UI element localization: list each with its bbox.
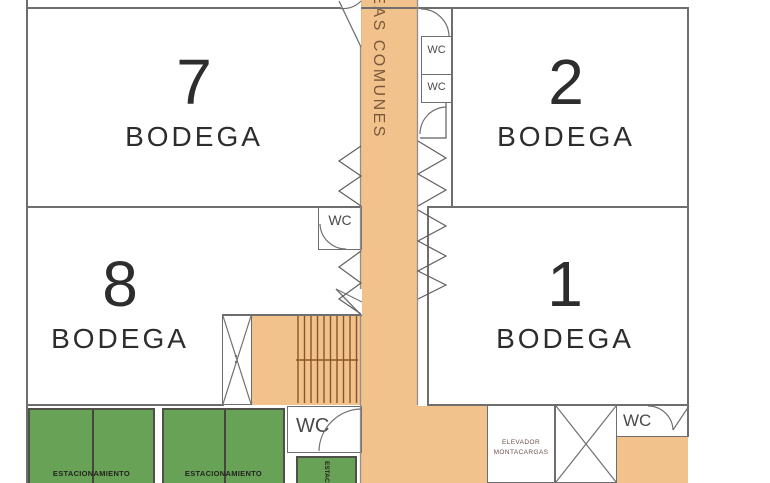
wall-right [687,7,689,437]
floor-plan-canvas: AREAS COMUNES 7 BODEGA 2 BODEGA 8 BODEGA… [0,0,770,483]
small-elevator-shaft [222,315,252,405]
corridor-label: AREAS COMUNES [369,0,387,186]
bodega-2-number: 2 [491,50,641,114]
circulation-zone-stairs [252,315,362,405]
bodega-7-type: BODEGA [119,123,269,151]
door-corridor-stairs-icon [336,289,362,316]
parking-block-small: ESTACIONAMIENTO [296,456,357,483]
parking-left-label: ESTACIONAMIENTO [30,469,153,478]
freight-elevator-room: ELEVADOR MONTACARGAS [487,405,555,483]
wall-bodega8-bottom [26,404,224,406]
wall-bodega1-left [427,207,429,405]
wc-room-top-1: WC [421,36,452,75]
wall-bodega2-1-divider [427,206,689,208]
wc-bottom-center-label: WC [296,415,329,438]
freight-elevator-label-line2: MONTACARGAS [488,448,554,458]
bodega-7-number: 7 [119,50,269,114]
circulation-zone-bottom [418,406,487,483]
freight-elevator-label-line1: ELEVADOR [488,438,554,448]
bodega-1-type: BODEGA [490,325,640,353]
zigzag-doors-right-icon [418,103,446,299]
freight-elevator-label: ELEVADOR MONTACARGAS [488,438,554,458]
wc-room-top-2: WC [421,74,452,103]
wall-top [26,7,689,9]
wall-bodega7-8-divider [26,206,362,208]
room-bodega-1: 1 BODEGA [490,252,640,353]
bodega-1-number: 1 [490,252,640,316]
room-bodega-7: 7 BODEGA [119,50,269,151]
parking-center-label: ESTACIONAMIENTO [164,469,283,478]
wc-mid-left-label: WC [319,212,361,228]
bodega-8-type: BODEGA [45,325,195,353]
wc-room-mid-left: WC [318,207,362,250]
wc-top-1-label: WC [422,44,451,56]
wc-bottom-right-label: WC [623,411,651,431]
bodega-2-type: BODEGA [491,123,641,151]
door-arc-wc-top2-icon [420,107,446,134]
door-arc-wc-top-icon [421,9,449,36]
room-bodega-8: 8 BODEGA [45,252,195,353]
bodega-8-number: 8 [45,252,195,316]
wc-room-bottom-center: WC [287,406,362,453]
wc-room-bottom-right: WC [616,405,688,437]
wc-top-2-label: WC [422,81,451,93]
parking-small-label: ESTACIONAMIENTO [323,461,330,483]
freight-elevator-shaft [555,405,617,483]
parking-block-center: ESTACIONAMIENTO [162,408,285,483]
parking-block-left: ESTACIONAMIENTO [28,408,155,483]
circulation-zone-bottom-right [617,437,688,483]
room-bodega-2: 2 BODEGA [491,50,641,151]
